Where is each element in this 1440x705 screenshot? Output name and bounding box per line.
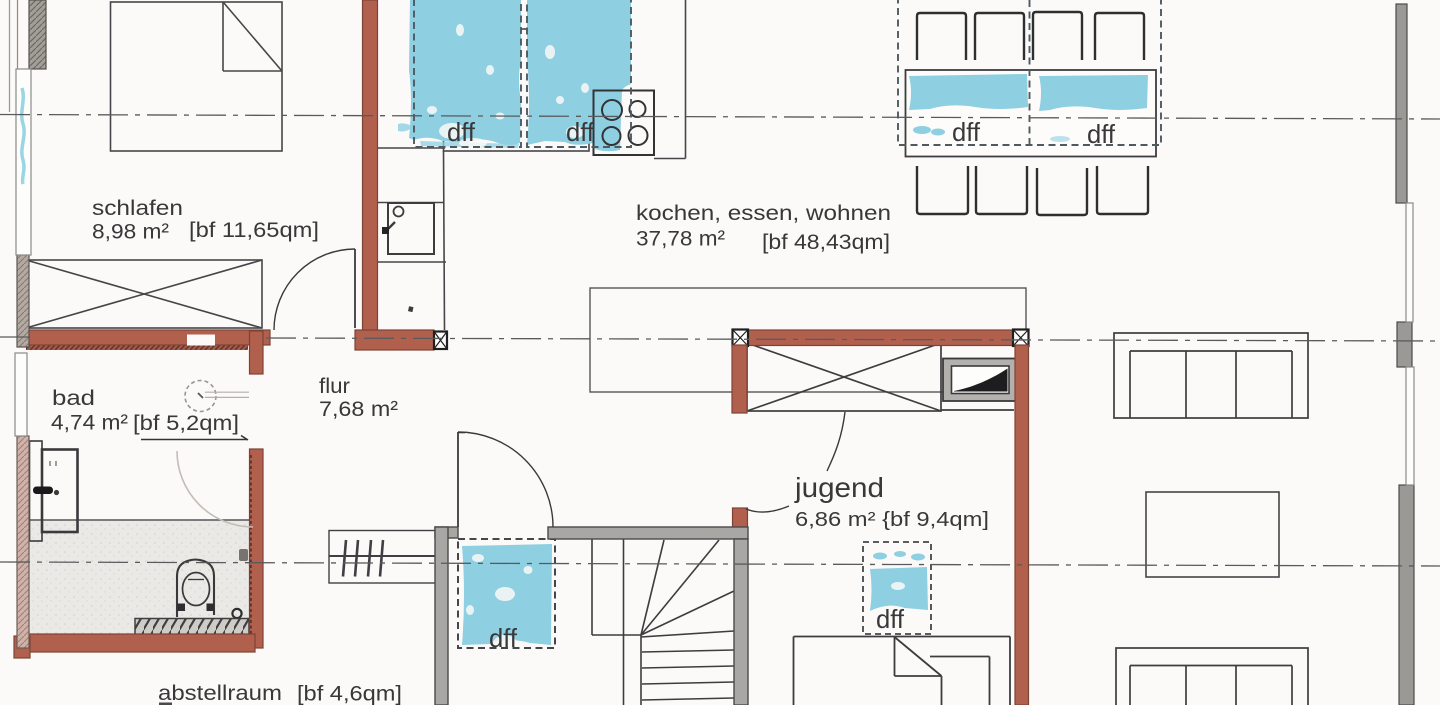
svg-text:37,78 m²: 37,78 m² [636,227,725,251]
svg-text:dff: dff [952,117,981,147]
svg-text:[bf 5,2qm]: [bf 5,2qm] [133,412,239,435]
svg-text:dff: dff [566,117,595,147]
svg-text:dff: dff [876,604,905,634]
svg-text:[bf 11,65qm]: [bf 11,65qm] [189,219,319,242]
svg-text:schlafen: schlafen [92,196,183,220]
svg-text:kochen, essen, wohnen: kochen, essen, wohnen [636,201,891,225]
svg-text:bad: bad [52,386,95,410]
svg-text:dff: dff [1087,119,1116,149]
svg-text:dff: dff [447,117,476,147]
svg-text:dff: dff [489,623,518,653]
svg-text:6,86 m² {bf 9,4qm]: 6,86 m² {bf 9,4qm] [795,508,989,531]
svg-text:flur: flur [319,374,350,398]
svg-text:[bf 48,43qm]: [bf 48,43qm] [762,231,890,254]
svg-text:jugend: jugend [794,472,884,503]
svg-text:7,68 m²: 7,68 m² [319,397,398,421]
svg-text:[bf 4,6qm]: [bf 4,6qm] [297,683,402,705]
svg-text:abstellraum: abstellraum [158,681,282,705]
svg-text:4,74 m²: 4,74 m² [51,411,128,435]
svg-text:8,98 m²: 8,98 m² [92,220,169,244]
